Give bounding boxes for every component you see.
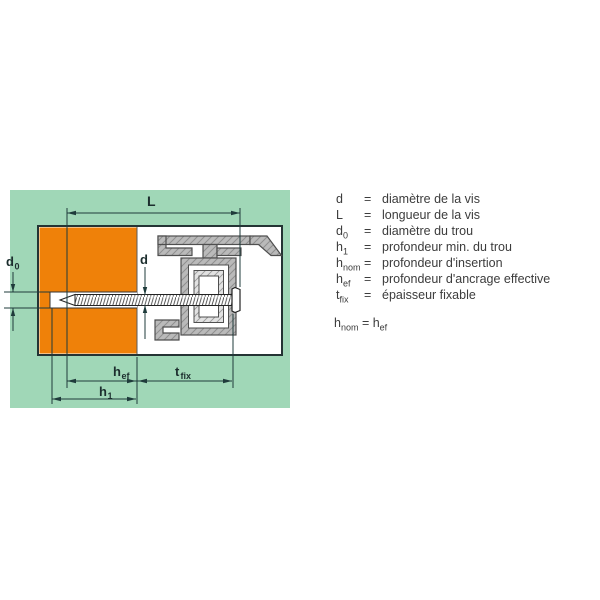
page: L d d 0 h ef t fix h 1 d = diamètre de l…: [0, 0, 600, 600]
legend-symbol: d: [336, 192, 343, 206]
legend-row-hef: hef = profondeur d'ancrage effective: [336, 271, 596, 287]
legend-description: profondeur min. du trou: [382, 239, 596, 255]
legend-description: diamètre du trou: [382, 223, 596, 239]
label-hef-base: h: [113, 364, 121, 379]
label-h1-sub: 1: [108, 391, 113, 401]
profile-top-bar: [158, 236, 250, 245]
label-h1-base: h: [99, 384, 107, 399]
screw-thread-hatch: [76, 295, 232, 305]
equals-sign: =: [364, 271, 382, 287]
equals-sign: =: [364, 223, 382, 239]
equals-sign: =: [364, 207, 382, 223]
label-hef-sub: ef: [122, 371, 131, 381]
legend-description: diamètre de la vis: [382, 191, 596, 207]
legend-description: profondeur d'ancrage effective: [382, 271, 596, 287]
equals-sign: =: [364, 191, 382, 207]
equivalence-note: hnom = hef: [334, 316, 387, 330]
legend-row-hnom: hnom = profondeur d'insertion: [336, 255, 596, 271]
legend-symbol: d: [336, 224, 343, 238]
wall-section-orange: [40, 228, 138, 354]
legend-row-d0: d0 = diamètre du trou: [336, 223, 596, 239]
legend-description: profondeur d'insertion: [382, 255, 596, 271]
legend-row-h1: h1 = profondeur min. du trou: [336, 239, 596, 255]
label-tfix-base: t: [175, 364, 180, 379]
legend-row-L: L = longueur de la vis: [336, 207, 596, 223]
anchor-installation-diagram: L d d 0 h ef t fix h 1: [0, 0, 310, 420]
legend-description: épaisseur fixable: [382, 287, 596, 303]
legend-symbol: h: [336, 272, 343, 286]
label-d0-base: d: [6, 254, 14, 269]
legend-description: longueur de la vis: [382, 207, 596, 223]
legend-symbol: h: [336, 240, 343, 254]
profile-stem: [203, 245, 217, 259]
label-L: L: [147, 193, 156, 209]
legend: d = diamètre de la vis L = longueur de l…: [336, 191, 596, 303]
legend-symbol: h: [336, 256, 343, 270]
legend-row-tfix: tfix = épaisseur fixable: [336, 287, 596, 303]
screw-head: [232, 288, 240, 313]
equals-sign: =: [364, 287, 382, 303]
label-tfix-sub: fix: [181, 371, 192, 381]
equals-sign: =: [364, 255, 382, 271]
equals-sign: =: [364, 239, 382, 255]
label-d0-sub: 0: [15, 262, 20, 272]
legend-row-d: d = diamètre de la vis: [336, 191, 596, 207]
label-d: d: [140, 252, 148, 267]
legend-symbol: L: [336, 208, 343, 222]
profile-right-arm: [217, 248, 241, 256]
